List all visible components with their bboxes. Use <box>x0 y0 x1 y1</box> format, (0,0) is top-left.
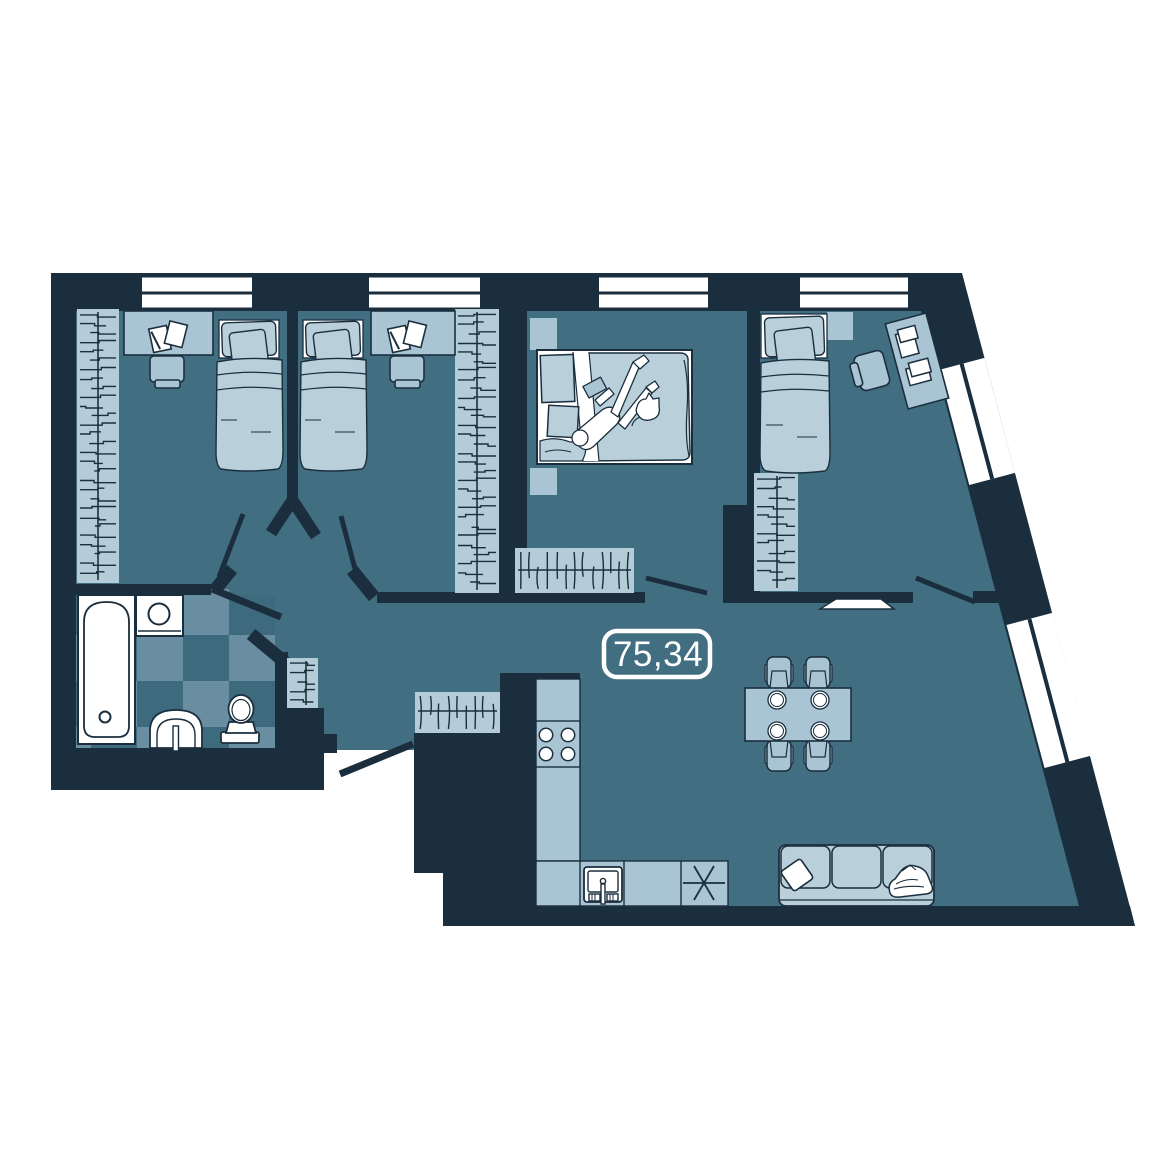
svg-text:75,34: 75,34 <box>613 635 703 674</box>
